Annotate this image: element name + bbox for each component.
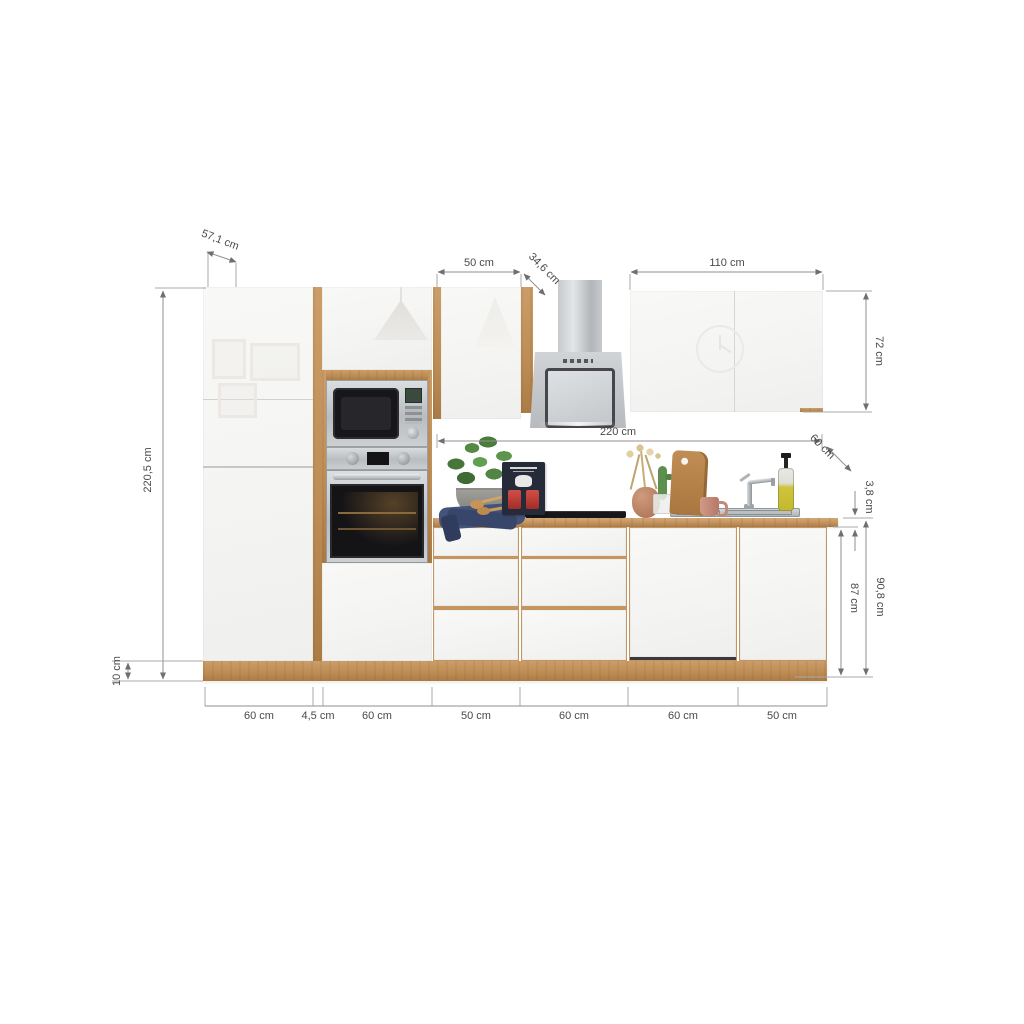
- microwave-dial: [407, 427, 419, 439]
- hood-light: [540, 422, 616, 426]
- drawer-front: [522, 528, 626, 556]
- microwave-control-panel: [403, 386, 424, 441]
- cookbook: [502, 462, 545, 515]
- microwave-window: [341, 397, 391, 430]
- dim-label-bottom-width-0: 60 cm: [244, 710, 274, 722]
- microwave-display: [405, 388, 422, 403]
- microwave-door-glass: [333, 388, 399, 439]
- dim-label-base-unit-height: 87 cm: [848, 583, 860, 613]
- base-drawer-unit-60: [521, 527, 627, 661]
- dim-label-tall-unit-depth: 57,1 cm: [200, 228, 241, 253]
- dim-label-working-height: 90,8 cm: [874, 577, 886, 616]
- dim-label-worktop-thickness: 3,8 cm: [863, 480, 875, 513]
- book-title-line: [513, 471, 534, 472]
- wall-cabinet-right-bottom-edge: [800, 408, 823, 412]
- wall-cabinet-left: [433, 287, 533, 419]
- book-photo: [508, 490, 521, 509]
- tower-bottom-front: [322, 563, 432, 661]
- microwave: [326, 380, 428, 447]
- wall-cabinet-left-door: [441, 287, 521, 419]
- hood-chimney: [558, 280, 602, 354]
- hood-glass-panel: [545, 368, 615, 428]
- dim-label-worktop-depth: 60 cm: [807, 432, 837, 462]
- dim-label-wall-cabinet-height: 72 cm: [873, 336, 885, 366]
- oven-knob: [397, 452, 410, 465]
- dim-label-bottom-width-1: 4,5 cm: [301, 710, 334, 722]
- board-handle-hole: [681, 458, 688, 465]
- picture-frame-reflection: [250, 343, 300, 381]
- dim-worktop-thickness: 3,8 cm: [833, 480, 875, 551]
- dim-label-bottom-width-5: 60 cm: [668, 710, 698, 722]
- wall-cabinet-left-side: [433, 287, 441, 419]
- dim-total-height: 220,5 cm: [112, 288, 206, 681]
- dim-bottom-widths: 60 cm 4,5 cm 60 cm 50 cm 60 cm 60 cm 50 …: [205, 687, 827, 722]
- dim-worktop-depth: 60 cm: [807, 432, 851, 471]
- dim-label-plinth-height: 10 cm: [111, 656, 123, 686]
- faucet-column: [747, 482, 752, 506]
- dim-label-bottom-width-2: 60 cm: [362, 710, 392, 722]
- tall-cabinet: [203, 287, 313, 661]
- plinth: [203, 661, 827, 681]
- product-image-kitchen-block: 57,1 cm 220,5 cm 10 cm 50 cm 34,6 cm: [0, 0, 1024, 1024]
- pendant-lamp-cord-reflection: [400, 287, 402, 301]
- range-hood: [530, 352, 626, 428]
- dishwasher-vent-line: [630, 657, 736, 660]
- microwave-buttons: [405, 406, 422, 424]
- oven-rack: [338, 528, 416, 530]
- wall-cabinet-right: [630, 291, 823, 412]
- oven-interior-glow: [336, 492, 418, 550]
- base-door: [740, 528, 826, 660]
- soap-pump-stem: [784, 458, 788, 468]
- oven-rack: [338, 512, 416, 514]
- soap-dispenser: [776, 453, 796, 511]
- tower-top-door: [322, 287, 432, 370]
- dim-label-bottom-width-6: 50 cm: [767, 710, 797, 722]
- dim-label-wall-cabinet-left-width: 50 cm: [464, 257, 494, 269]
- dim-label-wall-cabinet-depth: 34,6 cm: [526, 251, 562, 287]
- dim-tall-unit-depth: 57,1 cm: [200, 228, 241, 287]
- faucet: [727, 470, 777, 510]
- clock-hand: [719, 335, 721, 350]
- dim-label-bottom-width-4: 60 cm: [559, 710, 589, 722]
- dishwasher-door: [630, 528, 736, 657]
- dim-wall-cabinet-left-width: 50 cm: [437, 257, 521, 287]
- picture-frame-reflection: [218, 383, 257, 418]
- mug-body: [700, 497, 719, 516]
- faucet-spout-tip: [771, 478, 775, 486]
- book-title-line: [510, 467, 537, 469]
- built-in-oven: [326, 447, 428, 563]
- picture-frame-reflection: [212, 339, 246, 379]
- dim-label-total-height: 220,5 cm: [142, 447, 154, 492]
- spoon-head: [477, 507, 490, 515]
- base-drawer-unit-50: [433, 527, 519, 661]
- reflection: [475, 297, 515, 347]
- oven-control-panel: [326, 447, 428, 470]
- clock-hand: [721, 345, 732, 354]
- wall-cabinet-right-side: [521, 287, 533, 413]
- dim-base-unit-height: 87 cm: [841, 530, 860, 675]
- drawer-front: [434, 559, 518, 606]
- tower-shelf-band: [322, 370, 432, 380]
- book-graphic: [515, 475, 532, 487]
- base-unit-50: [739, 527, 827, 661]
- base-unit-dishwasher: [629, 527, 737, 661]
- oven-door: [326, 470, 428, 563]
- dim-plinth-height: 10 cm: [111, 656, 203, 686]
- wood-filler-panel: [313, 287, 322, 661]
- mug-handle: [718, 501, 728, 517]
- oven-display: [367, 452, 389, 465]
- book-photo: [526, 490, 539, 509]
- tower-side-right: [428, 370, 432, 563]
- pendant-lamp-reflection: [374, 300, 428, 340]
- tall-cabinet-door-seam: [203, 466, 313, 468]
- mug: [700, 497, 725, 516]
- oven-knob: [346, 452, 359, 465]
- clock-reflection: [696, 325, 744, 373]
- dim-wall-cabinet-right-width: 110 cm: [630, 257, 823, 290]
- dim-label-bottom-width-3: 50 cm: [461, 710, 491, 722]
- flower-head: [622, 442, 662, 462]
- soap-bottle: [778, 468, 794, 511]
- hood-buttons: [563, 359, 593, 363]
- drawer-front: [434, 610, 518, 660]
- drawer-front: [522, 559, 626, 606]
- oven-door-glass: [330, 484, 424, 558]
- oven-handle: [333, 474, 421, 480]
- dim-label-wall-cabinet-right-width: 110 cm: [709, 257, 744, 269]
- drawer-front: [522, 610, 626, 660]
- oven-tower: [322, 287, 432, 661]
